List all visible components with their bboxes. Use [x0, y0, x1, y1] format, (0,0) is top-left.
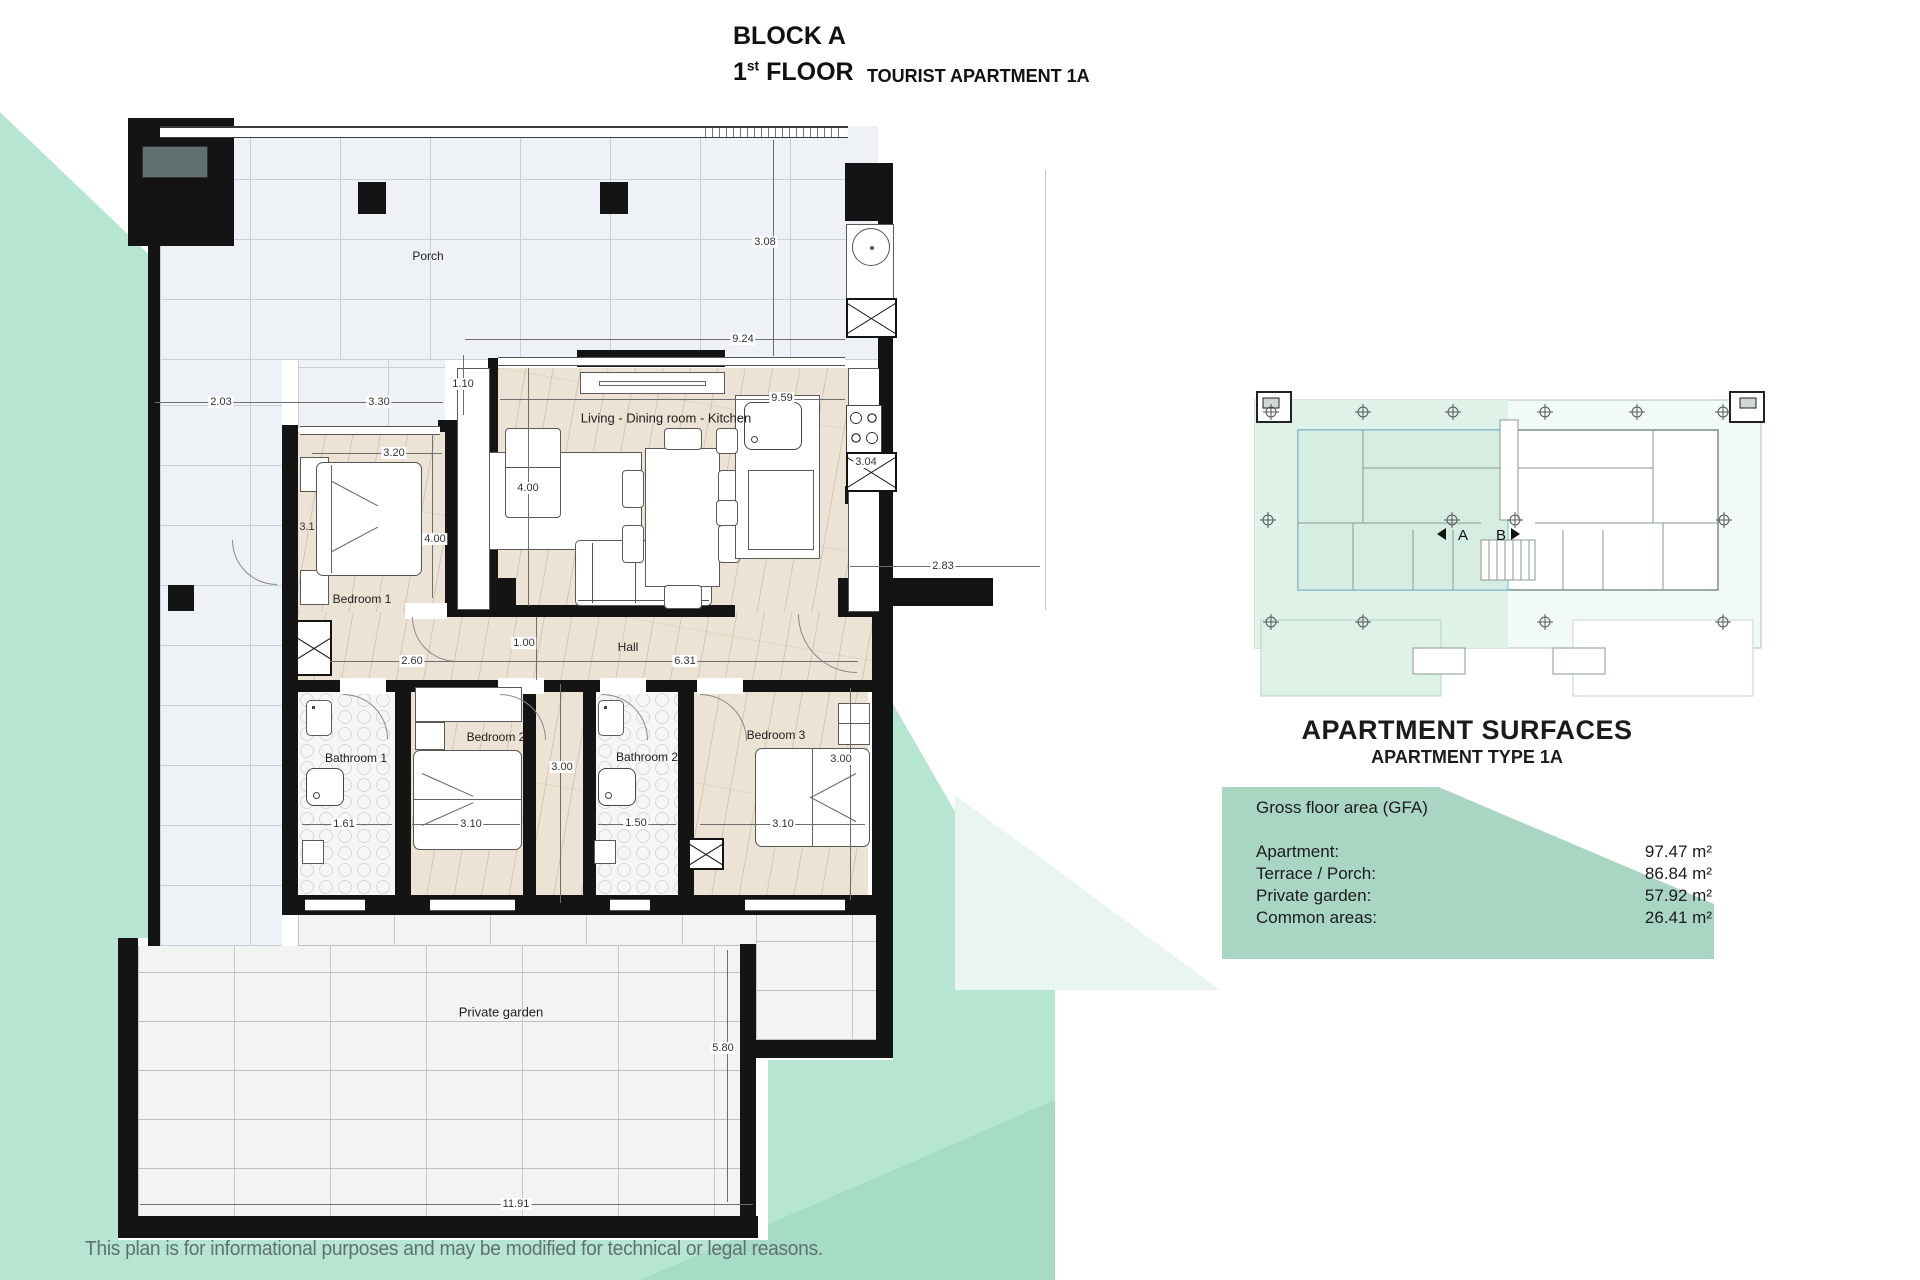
dining-chair: [664, 428, 702, 450]
dim-label: 3.1: [297, 521, 316, 533]
wall-right-lower: [872, 610, 893, 907]
window-slot: [430, 899, 515, 911]
surface-row-label: Private garden:: [1256, 886, 1371, 906]
porch-railing-hatched: [705, 126, 845, 138]
neighbor-unit-fragment: [893, 170, 1046, 610]
surface-row-label: Terrace / Porch:: [1256, 864, 1376, 884]
dim-label: 2.60: [399, 655, 424, 667]
surface-row-label: Apartment:: [1256, 842, 1339, 862]
wall-terrace-cap: [756, 1040, 893, 1058]
dim-label: 1.10: [450, 378, 475, 390]
tv-sideboard: [580, 372, 725, 394]
bidet-icon: [594, 840, 616, 864]
dim-label: 6.31: [672, 655, 697, 667]
hall-floor: [298, 612, 872, 682]
dim-label: 1.50: [623, 817, 648, 829]
wall-garden-right: [740, 944, 756, 1238]
dim-label: 3.30: [366, 396, 391, 408]
dining-chair: [664, 585, 702, 609]
floor-number: 1: [733, 58, 747, 86]
porch-floor-left-ext: [298, 360, 445, 428]
dining-table: [645, 448, 720, 587]
wall-living-corner: [488, 578, 516, 608]
dim-line: [727, 950, 728, 1202]
surface-row-label: Common areas:: [1256, 908, 1377, 928]
stool: [716, 428, 738, 454]
wall-left-outer: [148, 246, 160, 946]
floor-word: FLOOR: [766, 58, 854, 86]
shaft-box-icon: [296, 620, 332, 676]
closet-nook: [457, 368, 490, 610]
dim-line: [560, 684, 561, 903]
surface-row-value: 26.41 m²: [1645, 908, 1712, 928]
bidet-icon: [302, 840, 324, 864]
utility-box: [142, 146, 208, 178]
dim-label: 9.59: [769, 392, 794, 404]
floor-ordinal: st: [747, 59, 759, 74]
surfaces-subtitle: APARTMENT TYPE 1A: [1371, 747, 1563, 768]
dim-label: 3.10: [770, 818, 795, 830]
window-slot: [610, 899, 650, 911]
key-plan: A B: [1253, 390, 1768, 702]
unit-b-label: B: [1496, 527, 1506, 544]
side-terrace-floor: [756, 915, 893, 1040]
door-gap: [697, 678, 743, 694]
dining-chair: [622, 470, 644, 508]
title-block-name: BLOCK A: [733, 22, 846, 51]
shaft-box-icon: [846, 298, 897, 338]
toilet-icon: [306, 700, 332, 736]
door-gap: [600, 678, 646, 694]
wardrobe: [838, 703, 870, 725]
bathroom-sink-icon: [306, 768, 344, 806]
bbq-icon: [852, 228, 890, 266]
dim-line: [140, 1204, 753, 1205]
dining-chair: [622, 525, 644, 563]
room-label-porch: Porch: [412, 249, 443, 263]
dim-label: 3.10: [458, 818, 483, 830]
room-label-bedroom3: Bedroom 3: [747, 728, 806, 742]
garden-floor: [138, 946, 756, 1218]
surfaces-title: APARTMENT SURFACES: [1301, 715, 1632, 746]
wall-bath1-bed2: [395, 682, 411, 907]
bed-double: [316, 462, 422, 576]
wall-garden-bottom: [118, 1216, 758, 1238]
dim-label: 1.61: [331, 818, 356, 830]
dim-label: 2.03: [208, 396, 233, 408]
window-slot: [305, 899, 365, 911]
plan-sheet: Porch Living - Dining room - Kitchen Bed…: [0, 0, 1920, 1280]
wall-garden-left: [118, 938, 138, 1238]
room-label-bathroom1: Bathroom 1: [325, 751, 387, 765]
stool: [716, 500, 738, 526]
surface-row: Terrace / Porch: 86.84 m²: [1256, 864, 1712, 884]
bed-double: [413, 750, 522, 850]
unit-a-label: A: [1458, 527, 1468, 544]
stove-icon: [846, 405, 882, 453]
room-label-living: Living - Dining room - Kitchen: [581, 411, 752, 426]
dim-label: 3.08: [752, 236, 777, 248]
dim-line: [312, 453, 442, 454]
surface-row-value: 57.92 m²: [1645, 886, 1712, 906]
wall-bed1-jamb: [438, 420, 457, 432]
dim-line: [773, 140, 774, 356]
wall-bedroom1-right: [445, 425, 457, 617]
dim-label: 3.00: [549, 761, 574, 773]
sink-icon: [744, 402, 802, 450]
dim-label: 11.91: [501, 1198, 532, 1210]
title-apartment-type: TOURIST APARTMENT 1A: [867, 66, 1090, 87]
island-cabinet: [748, 470, 814, 550]
porch-column: [600, 182, 628, 214]
wall-corner-topright: [845, 163, 893, 221]
surface-row: Apartment: 97.47 m²: [1256, 842, 1712, 862]
wall-bath2-bed3: [678, 682, 694, 907]
dim-label: 4.00: [515, 482, 540, 494]
porch-column: [168, 585, 194, 611]
living-window: [498, 357, 845, 366]
room-label-bathroom2: Bathroom 2: [616, 750, 678, 764]
dim-label: 3.20: [381, 447, 406, 459]
wall-terrace-right: [876, 905, 893, 1058]
surface-row: Common areas: 26.41 m²: [1256, 908, 1712, 928]
bathroom-sink-icon: [598, 768, 636, 806]
dim-label: 9.24: [730, 333, 755, 345]
wall-hall-bath2: [583, 682, 596, 907]
surface-row: Private garden: 57.92 m²: [1256, 886, 1712, 906]
wardrobe: [838, 723, 870, 745]
surface-row-value: 97.47 m²: [1645, 842, 1712, 862]
title-floor: 1st FLOOR: [733, 58, 854, 87]
green-faint-accent: [955, 795, 1220, 990]
dim-line: [155, 402, 443, 403]
room-label-bedroom2: Bedroom 2: [467, 730, 526, 744]
dim-line: [465, 339, 845, 340]
room-label-hall: Hall: [618, 640, 639, 654]
dim-label: 3.00: [828, 753, 853, 765]
door-gap: [340, 678, 386, 694]
porch-floor-side: [160, 360, 282, 946]
room-label-garden: Private garden: [459, 1005, 544, 1020]
wall-neighbor-bar: [893, 578, 993, 606]
gfa-label: Gross floor area (GFA): [1256, 798, 1712, 818]
dim-label: 1.00: [511, 637, 536, 649]
shaft-box-icon: [688, 838, 724, 870]
window-slot: [745, 899, 845, 911]
dim-line: [432, 434, 433, 598]
armchair: [505, 428, 561, 518]
room-label-bedroom1: Bedroom 1: [333, 592, 392, 606]
dim-label: 5.80: [710, 1042, 735, 1054]
surface-row-value: 86.84 m²: [1645, 864, 1712, 884]
porch-column: [358, 182, 386, 214]
dim-line: [850, 688, 851, 900]
dim-label: 2.83: [930, 560, 955, 572]
bedroom1-window: [300, 426, 440, 435]
dim-label: 4.00: [422, 533, 447, 545]
nightstand: [415, 722, 445, 750]
disclaimer-text: This plan is for informational purposes …: [85, 1238, 823, 1261]
dim-label: 3.04: [853, 456, 878, 468]
